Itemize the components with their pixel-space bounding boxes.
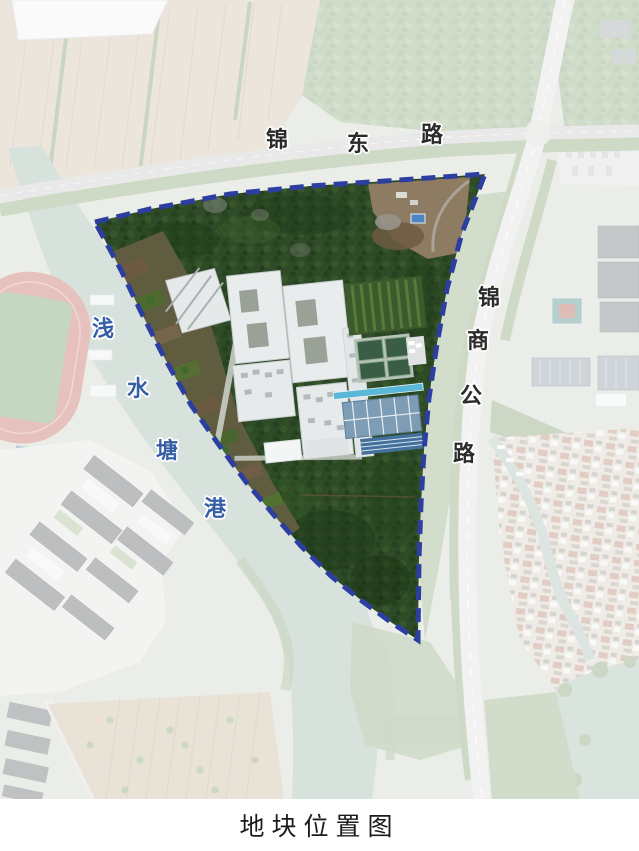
factory-block-c	[233, 360, 296, 422]
crop-rows-field	[344, 276, 427, 336]
road-label-char: 路	[453, 441, 476, 466]
road-label-char: 商	[467, 328, 489, 353]
satellite-map-svg: 锦 东 路 锦 商 公 路 浅 水 塘 港	[0, 0, 639, 799]
road-label-char: 路	[421, 122, 444, 147]
factory-block-b	[283, 280, 353, 383]
pool	[411, 214, 425, 223]
road-label-char: 锦	[478, 285, 500, 310]
paved-yard	[406, 336, 427, 366]
river-label-char: 塘	[156, 438, 178, 463]
title-band: 地块位置图	[0, 799, 639, 851]
river-label-char: 浅	[92, 316, 114, 341]
road-label-char: 公	[460, 383, 482, 408]
map-title: 地块位置图	[239, 807, 399, 843]
canopy-a	[264, 439, 302, 463]
river-label-char: 港	[204, 496, 227, 521]
construction-area	[368, 177, 470, 259]
road-label-char: 东	[347, 131, 369, 156]
warehouse-blue-roof	[342, 395, 421, 439]
location-map: 锦 东 路 锦 商 公 路 浅 水 塘 港	[0, 0, 639, 799]
sports-courts	[354, 333, 414, 383]
river-label-char: 水	[127, 376, 150, 401]
road-label-char: 锦	[266, 127, 288, 152]
factory-block-a	[226, 271, 289, 364]
